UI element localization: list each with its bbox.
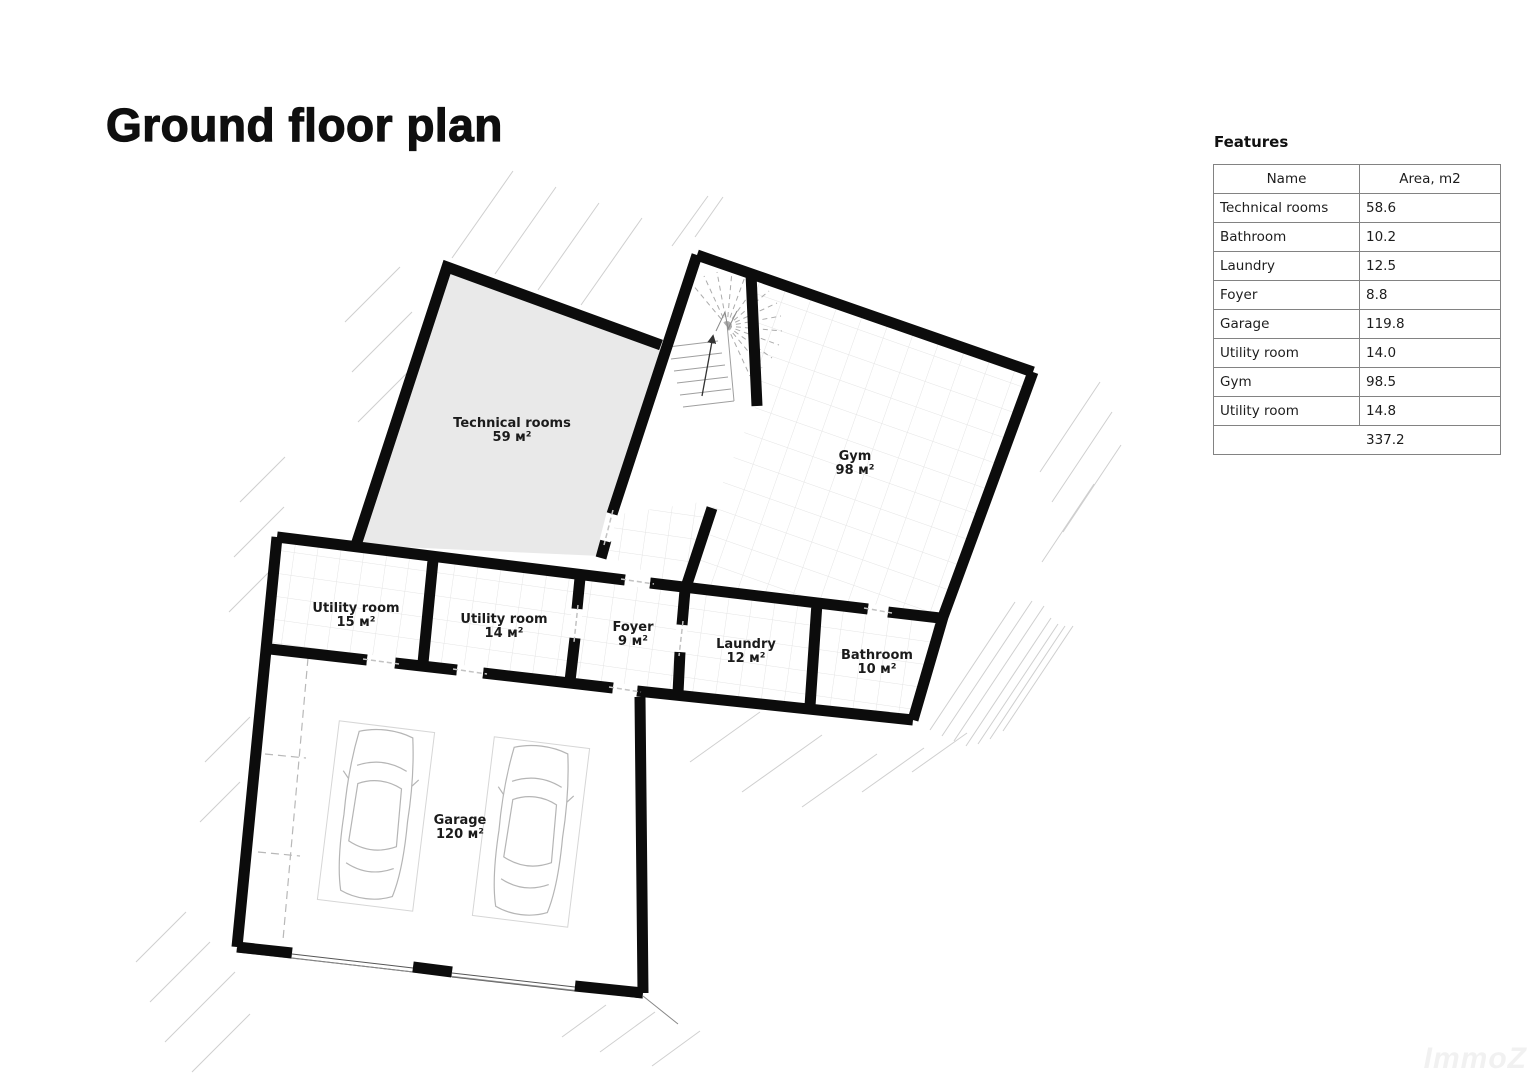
- name-cell: Laundry: [1214, 252, 1360, 281]
- feature-row: Technical rooms58.6: [1214, 194, 1501, 223]
- feature-row: Bathroom10.2: [1214, 223, 1501, 252]
- name-cell: Bathroom: [1214, 223, 1360, 252]
- features-total-row: 337.2: [1214, 426, 1501, 455]
- room-label: Gym98 м²: [836, 449, 875, 478]
- area-cell: 98.5: [1360, 368, 1501, 397]
- feature-row: Garage119.8: [1214, 310, 1501, 339]
- column-header-name: Name: [1214, 165, 1360, 194]
- name-cell: Utility room: [1214, 397, 1360, 426]
- area-cell: 58.6: [1360, 194, 1501, 223]
- feature-row: Gym98.5: [1214, 368, 1501, 397]
- name-cell: Technical rooms: [1214, 194, 1360, 223]
- feature-row: Utility room14.8: [1214, 397, 1501, 426]
- name-cell: Gym: [1214, 368, 1360, 397]
- features-table-body: Technical rooms58.6Bathroom10.2Laundry12…: [1214, 194, 1501, 426]
- area-cell: 14.8: [1360, 397, 1501, 426]
- area-cell: 12.5: [1360, 252, 1501, 281]
- area-cell: 10.2: [1360, 223, 1501, 252]
- watermark: ImmoZ: [1424, 1042, 1527, 1076]
- features-heading: Features: [1214, 133, 1501, 151]
- stairs-direction-arrow: [702, 336, 713, 396]
- area-cell: 8.8: [1360, 281, 1501, 310]
- page: Technical rooms59 м²Gym98 м²Utility room…: [0, 0, 1535, 1080]
- room-label: Foyer9 м²: [613, 620, 655, 649]
- features-panel: Features Name Area, m2 Technical rooms58…: [1213, 133, 1501, 455]
- room-label: Garage120 м²: [434, 813, 487, 842]
- name-cell: Utility room: [1214, 339, 1360, 368]
- area-cell: 14.0: [1360, 339, 1501, 368]
- features-table: Name Area, m2 Technical rooms58.6Bathroo…: [1213, 164, 1501, 455]
- total-area-cell: 337.2: [1214, 426, 1501, 455]
- area-cell: 119.8: [1360, 310, 1501, 339]
- name-cell: Garage: [1214, 310, 1360, 339]
- column-header-area: Area, m2: [1360, 165, 1501, 194]
- feature-row: Utility room14.0: [1214, 339, 1501, 368]
- features-header-row: Name Area, m2: [1214, 165, 1501, 194]
- page-title: Ground floor plan: [106, 98, 503, 152]
- feature-row: Foyer8.8: [1214, 281, 1501, 310]
- stairs-break-mark: [716, 311, 737, 331]
- feature-row: Laundry12.5: [1214, 252, 1501, 281]
- name-cell: Foyer: [1214, 281, 1360, 310]
